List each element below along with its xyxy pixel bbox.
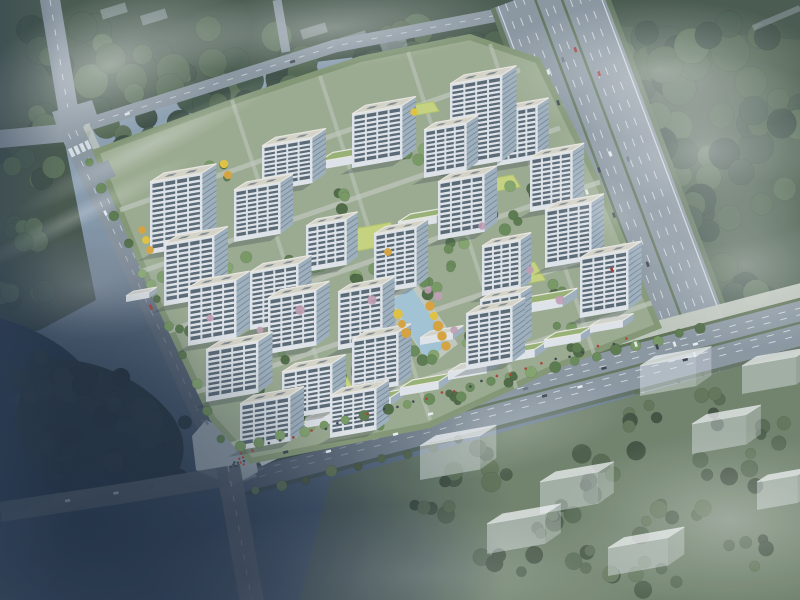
residential-masterplan-rendering <box>0 0 800 600</box>
cool-tint-overlay <box>0 0 800 600</box>
aerial-render-stage <box>0 0 800 600</box>
